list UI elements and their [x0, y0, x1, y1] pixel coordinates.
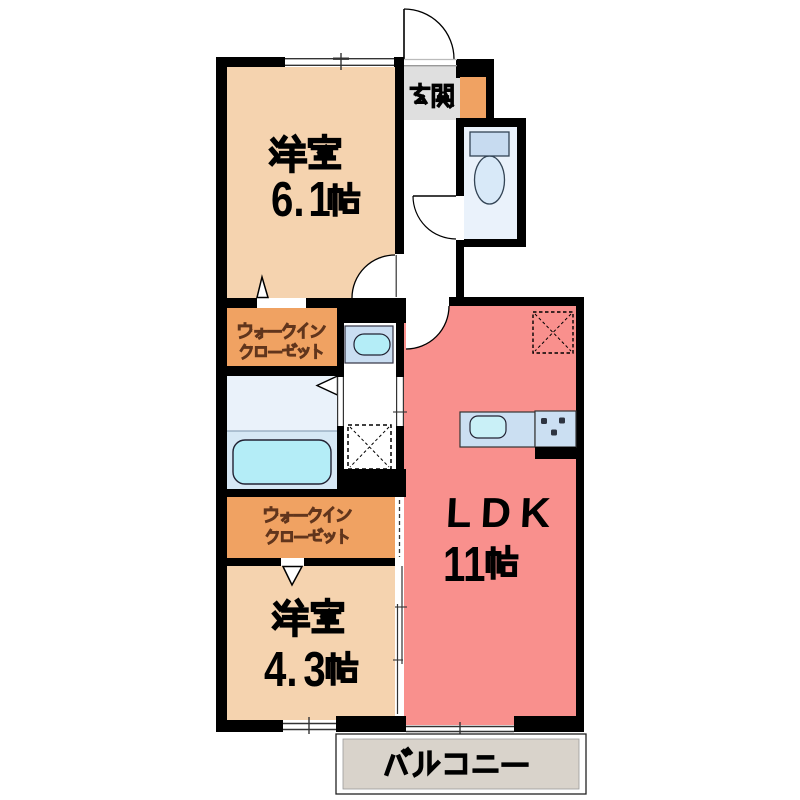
svg-text:4.: 4.	[264, 642, 298, 697]
svg-text:LDK: LDK	[445, 489, 561, 536]
svg-text:3: 3	[303, 642, 325, 697]
svg-text:1: 1	[308, 172, 330, 227]
svg-text:6.: 6.	[271, 172, 305, 227]
svg-text:11: 11	[443, 537, 485, 592]
